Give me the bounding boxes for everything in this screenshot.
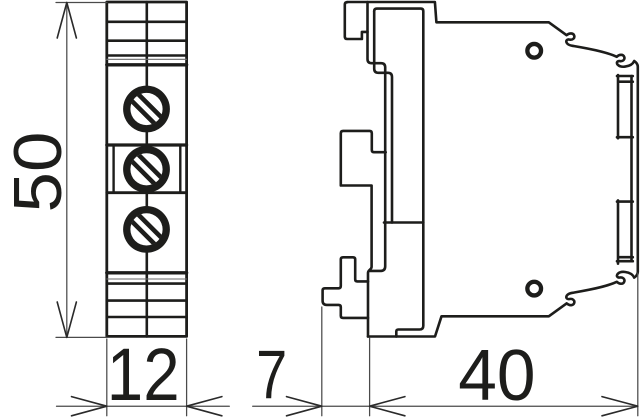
svg-text:12: 12 (107, 333, 180, 416)
svg-text:7: 7 (256, 336, 287, 413)
svg-text:40: 40 (458, 335, 535, 415)
svg-text:50: 50 (0, 132, 75, 213)
